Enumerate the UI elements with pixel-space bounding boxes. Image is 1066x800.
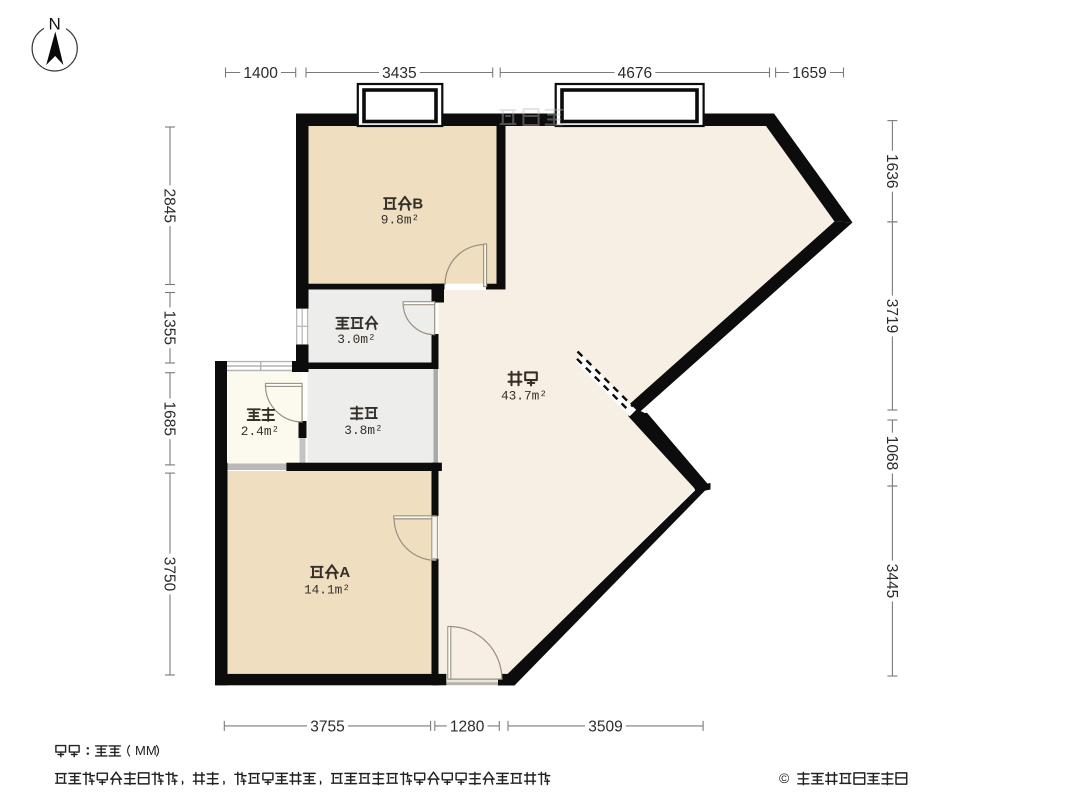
svg-text:©: © (779, 770, 790, 786)
svg-text:4676: 4676 (618, 65, 652, 82)
svg-text:43.7m²: 43.7m² (501, 389, 547, 404)
svg-text:2845: 2845 (161, 189, 178, 223)
svg-text:1280: 1280 (450, 718, 485, 735)
svg-text:A: A (339, 564, 350, 581)
svg-text:3445: 3445 (883, 564, 900, 598)
svg-text:2.4m²: 2.4m² (241, 424, 279, 439)
svg-text:1659: 1659 (792, 65, 826, 82)
svg-text:3750: 3750 (161, 557, 178, 592)
svg-text:1068: 1068 (883, 436, 900, 470)
svg-text:N: N (49, 15, 61, 34)
svg-text:1685: 1685 (161, 402, 178, 436)
svg-text:3719: 3719 (883, 299, 900, 333)
svg-text:MM: MM (135, 743, 157, 758)
svg-text:3509: 3509 (588, 718, 622, 735)
svg-text:B: B (412, 195, 423, 212)
svg-text:1636: 1636 (883, 154, 900, 188)
svg-text:9.8m²: 9.8m² (381, 213, 419, 228)
svg-text:1400: 1400 (243, 65, 278, 82)
svg-text:3755: 3755 (310, 718, 344, 735)
svg-text:3.8m²: 3.8m² (344, 423, 382, 438)
svg-text:3.0m²: 3.0m² (337, 332, 375, 347)
svg-text:1355: 1355 (161, 311, 178, 345)
svg-text:3435: 3435 (382, 65, 416, 82)
svg-text:14.1m²: 14.1m² (304, 583, 350, 598)
